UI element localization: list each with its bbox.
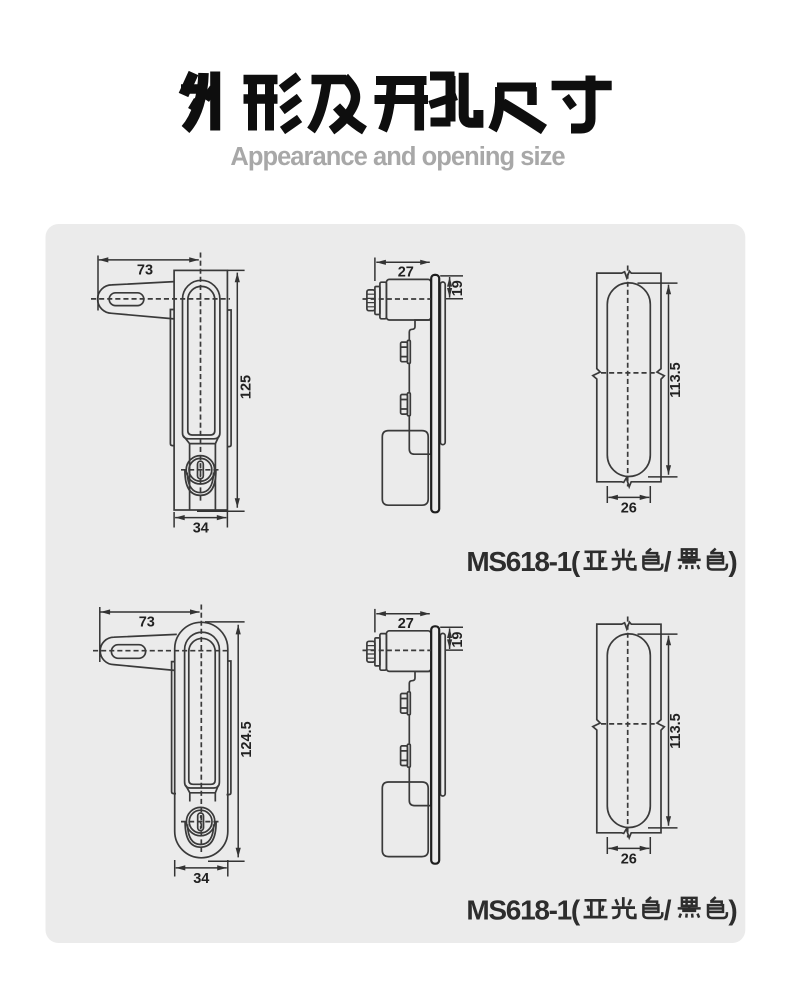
svg-text:27: 27 bbox=[398, 265, 414, 281]
svg-text:Appearance and opening size: Appearance and opening size bbox=[230, 143, 565, 171]
svg-text:113.5: 113.5 bbox=[668, 362, 684, 398]
svg-text:MS618-1(: MS618-1( bbox=[466, 546, 581, 577]
svg-text:34: 34 bbox=[193, 520, 209, 536]
svg-text:26: 26 bbox=[621, 500, 637, 516]
svg-text:34: 34 bbox=[193, 871, 209, 887]
svg-text:125: 125 bbox=[239, 375, 255, 399]
svg-text:124.5: 124.5 bbox=[239, 721, 255, 757]
svg-text:19: 19 bbox=[450, 280, 466, 296]
svg-text:73: 73 bbox=[139, 614, 155, 630]
svg-text:73: 73 bbox=[137, 262, 153, 278]
svg-text:/: / bbox=[664, 546, 672, 577]
svg-text:): ) bbox=[728, 546, 737, 577]
